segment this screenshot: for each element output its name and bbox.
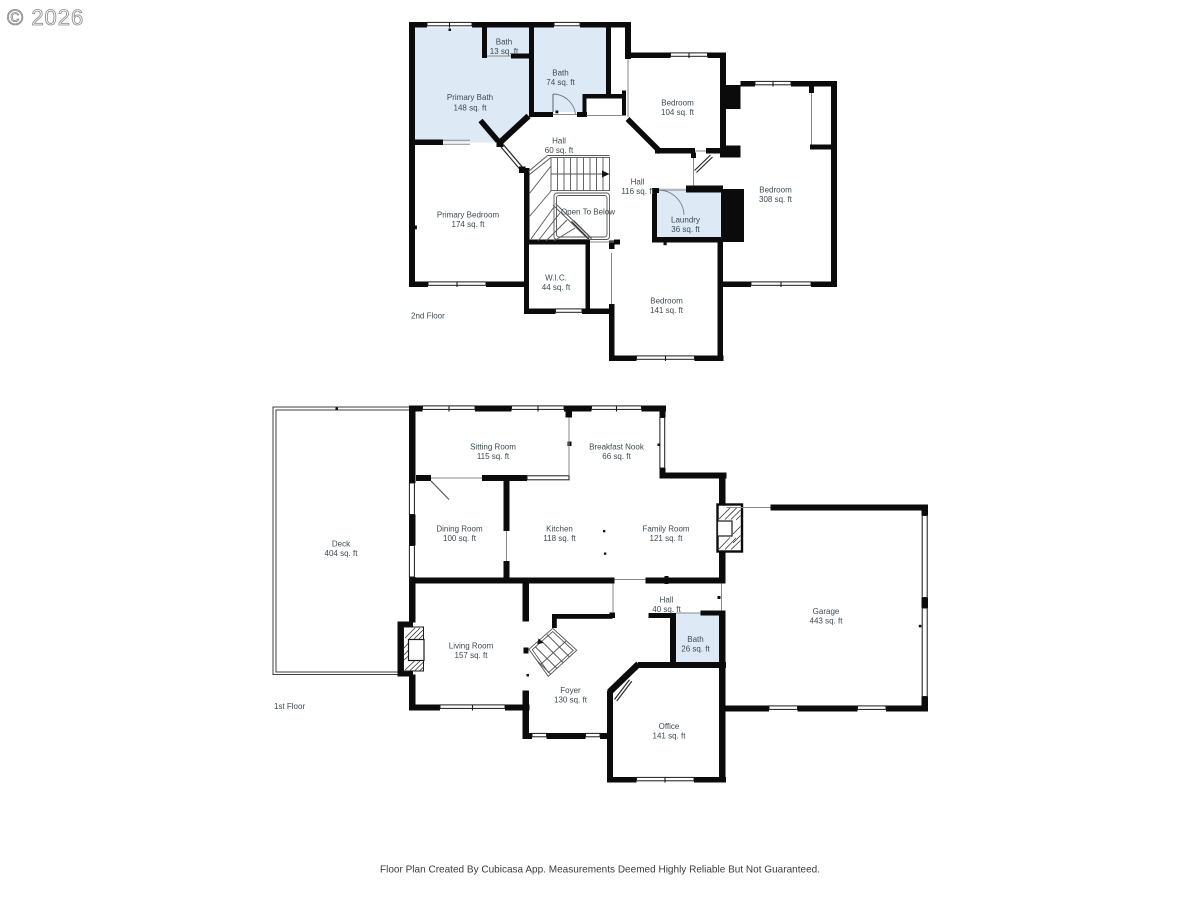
svg-text:26 sq. ft: 26 sq. ft — [681, 645, 710, 654]
svg-text:118 sq. ft: 118 sq. ft — [543, 534, 576, 543]
svg-text:Primary Bath: Primary Bath — [447, 93, 493, 102]
svg-text:Bedroom: Bedroom — [650, 297, 683, 306]
svg-text:66 sq. ft: 66 sq. ft — [602, 452, 631, 461]
svg-text:2nd Floor: 2nd Floor — [411, 312, 445, 321]
svg-text:174 sq. ft: 174 sq. ft — [452, 220, 486, 229]
svg-text:Floor Plan Created By Cubicasa: Floor Plan Created By Cubicasa App. Meas… — [380, 865, 820, 876]
svg-text:Hall: Hall — [660, 596, 674, 605]
svg-text:115 sq. ft: 115 sq. ft — [477, 452, 510, 461]
svg-text:Kitchen: Kitchen — [546, 525, 573, 534]
svg-text:Family Room: Family Room — [642, 525, 689, 534]
svg-text:Sitting Room: Sitting Room — [470, 443, 516, 452]
svg-text:141 sq. ft: 141 sq. ft — [650, 306, 684, 315]
svg-text:100 sq. ft: 100 sq. ft — [443, 534, 477, 543]
svg-text:74 sq. ft: 74 sq. ft — [546, 78, 575, 87]
svg-text:Bath: Bath — [496, 38, 512, 47]
svg-text:141 sq. ft: 141 sq. ft — [653, 732, 687, 741]
svg-text:Foyer: Foyer — [560, 686, 581, 695]
svg-text:308 sq. ft: 308 sq. ft — [759, 195, 793, 204]
svg-text:36 sq. ft: 36 sq. ft — [671, 225, 700, 234]
svg-text:Bath: Bath — [687, 635, 703, 644]
svg-text:Hall: Hall — [552, 137, 566, 146]
svg-text:443 sq. ft: 443 sq. ft — [810, 617, 844, 626]
svg-text:Bedroom: Bedroom — [661, 99, 694, 108]
svg-text:44 sq. ft: 44 sq. ft — [542, 283, 571, 292]
svg-text:W.I.C.: W.I.C. — [545, 274, 567, 283]
svg-text:Bedroom: Bedroom — [759, 186, 792, 195]
svg-text:104 sq. ft: 104 sq. ft — [661, 108, 695, 117]
svg-text:148 sq. ft: 148 sq. ft — [454, 104, 488, 113]
svg-text:130 sq. ft: 130 sq. ft — [554, 696, 588, 705]
svg-text:© 2026: © 2026 — [7, 5, 84, 30]
svg-text:Living Room: Living Room — [449, 642, 494, 651]
svg-text:157 sq. ft: 157 sq. ft — [455, 651, 489, 660]
svg-text:Breakfast Nook: Breakfast Nook — [589, 443, 645, 452]
svg-text:40 sq. ft: 40 sq. ft — [652, 605, 681, 614]
svg-text:1st Floor: 1st Floor — [274, 702, 305, 711]
svg-text:Office: Office — [659, 722, 680, 731]
svg-text:Primary Bedroom: Primary Bedroom — [437, 211, 500, 220]
svg-text:Open To Below: Open To Below — [561, 208, 615, 217]
svg-text:Laundry: Laundry — [671, 216, 700, 225]
svg-text:Dining Room: Dining Room — [436, 525, 483, 534]
svg-text:Deck: Deck — [332, 540, 351, 549]
svg-text:404 sq. ft: 404 sq. ft — [325, 549, 359, 558]
svg-text:Bath: Bath — [552, 69, 568, 78]
svg-text:13 sq. ft: 13 sq. ft — [490, 47, 519, 56]
svg-text:116 sq. ft: 116 sq. ft — [621, 187, 654, 196]
svg-text:121 sq. ft: 121 sq. ft — [650, 534, 684, 543]
svg-text:Garage: Garage — [813, 607, 840, 616]
svg-text:Hall: Hall — [631, 178, 645, 187]
svg-text:60 sq. ft: 60 sq. ft — [545, 146, 574, 155]
